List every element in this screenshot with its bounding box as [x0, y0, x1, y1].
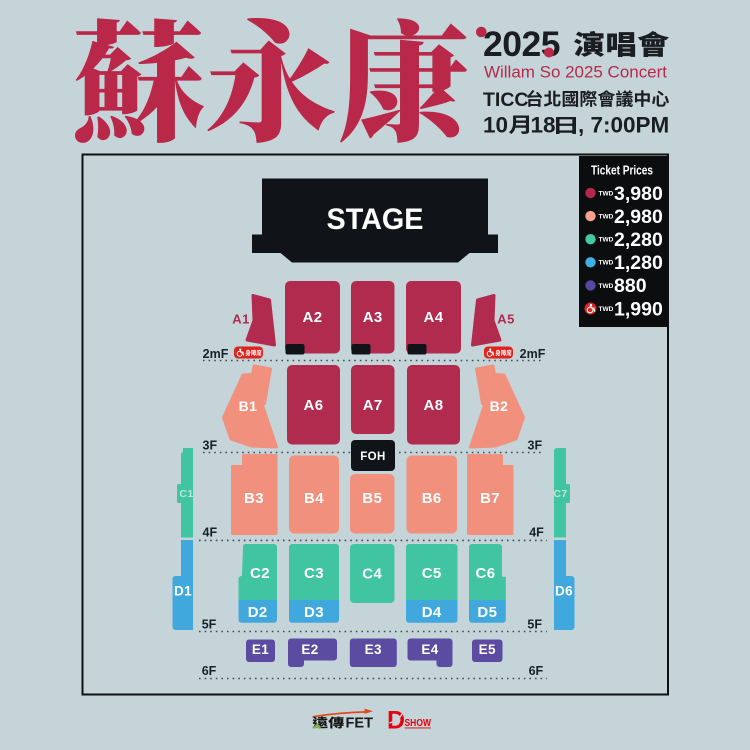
- svg-text:C3: C3: [304, 565, 324, 582]
- svg-text:3F: 3F: [203, 439, 218, 453]
- svg-text:TWD: TWD: [599, 283, 614, 290]
- svg-text:D6: D6: [555, 584, 573, 599]
- svg-text:FOH: FOH: [360, 451, 385, 463]
- svg-text:E5: E5: [479, 642, 496, 657]
- svg-text:B3: B3: [244, 490, 264, 507]
- svg-text:880: 880: [614, 275, 647, 297]
- svg-text:A5: A5: [497, 312, 514, 327]
- svg-text:B1: B1: [239, 398, 258, 414]
- svg-text:5F: 5F: [527, 617, 542, 631]
- svg-text:C6: C6: [476, 565, 496, 582]
- svg-text:TWD: TWD: [599, 237, 614, 244]
- svg-text:Willam So 2025 Concert: Willam So 2025 Concert: [484, 63, 667, 82]
- svg-text:18: 18: [531, 113, 556, 138]
- svg-text:D3: D3: [304, 604, 324, 621]
- svg-text:D5: D5: [477, 604, 497, 621]
- svg-text:5F: 5F: [202, 617, 217, 631]
- svg-text:B4: B4: [304, 490, 324, 507]
- svg-text:B6: B6: [422, 490, 442, 507]
- svg-text:2,980: 2,980: [614, 206, 663, 228]
- svg-text:TWD: TWD: [599, 214, 614, 221]
- svg-text:2mF: 2mF: [203, 347, 229, 361]
- svg-text:A3: A3: [363, 309, 383, 326]
- svg-text:6F: 6F: [529, 664, 544, 678]
- svg-text:TWD: TWD: [599, 306, 614, 313]
- svg-text:TWD: TWD: [599, 190, 614, 197]
- svg-text:, 7:00PM: , 7:00PM: [578, 113, 669, 138]
- svg-text:A4: A4: [424, 309, 444, 326]
- svg-text:E4: E4: [421, 642, 438, 657]
- svg-text:FET: FET: [346, 715, 374, 732]
- svg-text:Ticket Prices: Ticket Prices: [591, 164, 653, 178]
- svg-text:4F: 4F: [203, 526, 218, 540]
- svg-text:E3: E3: [365, 642, 382, 657]
- svg-text:A2: A2: [303, 309, 323, 326]
- svg-text:TWD: TWD: [599, 260, 614, 267]
- svg-text:A7: A7: [363, 397, 383, 414]
- svg-text:TICC: TICC: [483, 89, 529, 111]
- svg-text:C1: C1: [179, 488, 193, 500]
- svg-text:SHOW: SHOW: [405, 718, 432, 729]
- svg-text:C5: C5: [422, 565, 442, 582]
- svg-text:A8: A8: [424, 397, 444, 414]
- svg-text:A1: A1: [232, 312, 249, 327]
- svg-text:D2: D2: [248, 604, 268, 621]
- svg-text:D4: D4: [422, 604, 442, 621]
- svg-text:B2: B2: [490, 398, 509, 414]
- svg-text:C2: C2: [250, 565, 270, 582]
- svg-text:A6: A6: [304, 397, 324, 414]
- svg-text:10: 10: [483, 113, 508, 138]
- svg-text:B7: B7: [480, 490, 500, 507]
- svg-text:4F: 4F: [529, 526, 544, 540]
- svg-text:3F: 3F: [528, 439, 543, 453]
- svg-text:C7: C7: [553, 488, 567, 500]
- svg-text:STAGE: STAGE: [327, 203, 424, 236]
- svg-text:C4: C4: [362, 566, 382, 583]
- svg-text:D1: D1: [174, 584, 192, 599]
- svg-text:6F: 6F: [202, 664, 217, 678]
- svg-text:2mF: 2mF: [520, 347, 546, 361]
- svg-text:1,280: 1,280: [614, 252, 663, 274]
- svg-text:E2: E2: [301, 642, 318, 657]
- svg-text:B5: B5: [362, 490, 382, 507]
- svg-text:3,980: 3,980: [614, 183, 663, 205]
- svg-text:E1: E1: [252, 642, 269, 657]
- svg-text:1,990: 1,990: [614, 298, 663, 320]
- svg-text:2025: 2025: [483, 24, 560, 64]
- svg-text:2,280: 2,280: [614, 229, 663, 251]
